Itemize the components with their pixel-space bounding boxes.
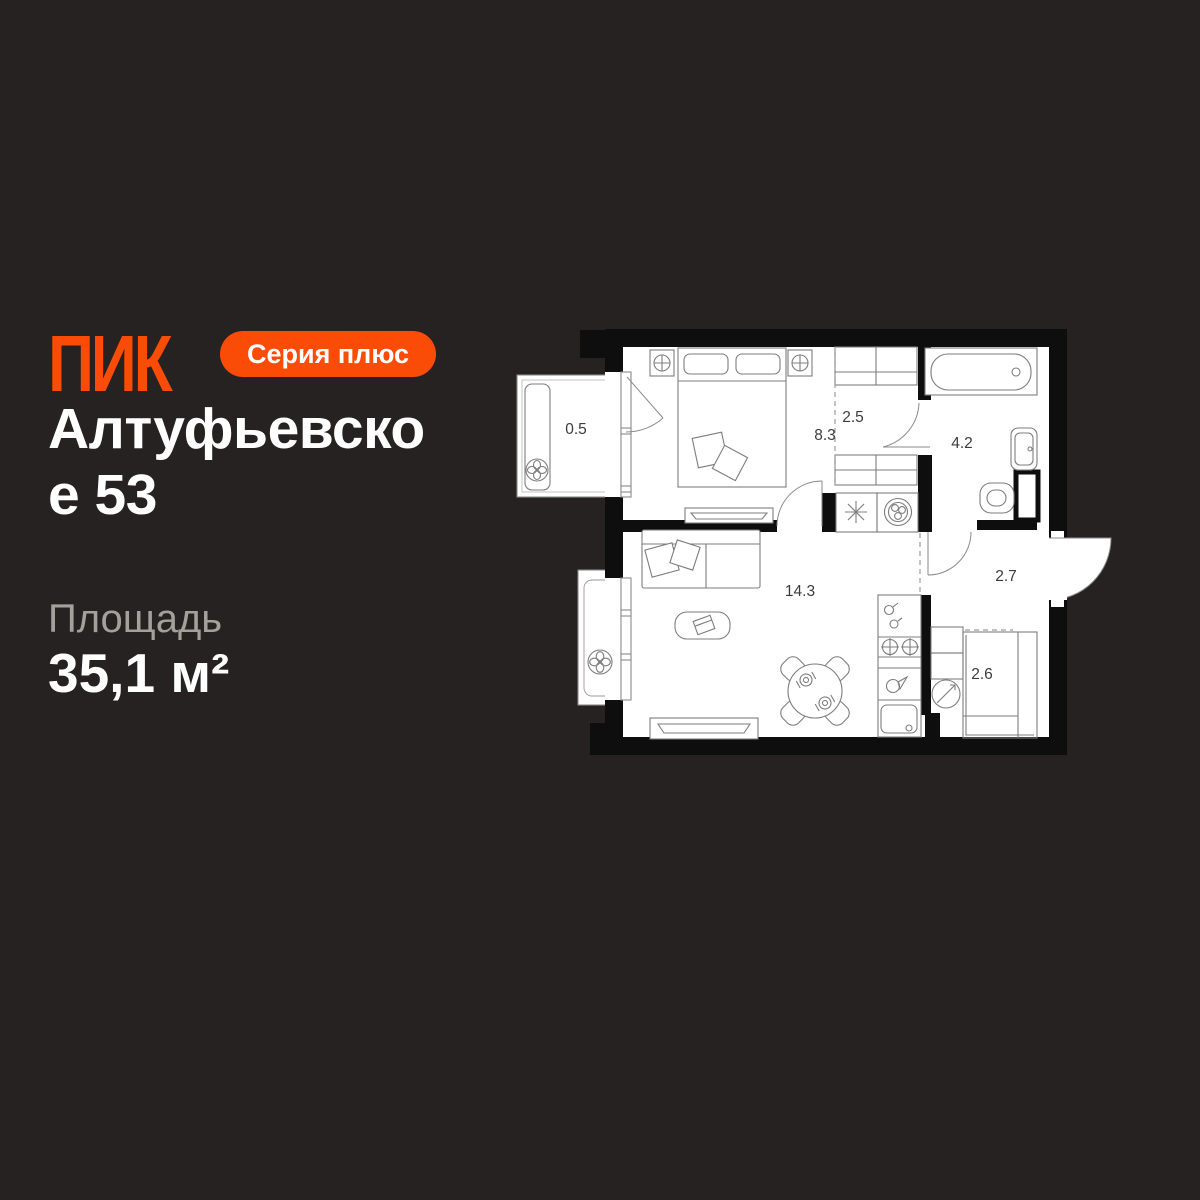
window-bedroom: [621, 372, 631, 497]
room-area-label: 14.3: [785, 583, 815, 600]
floor-plan-svg: 0.5 8.3 2.5 4.2 14.3 2.7 2.6: [510, 320, 1125, 760]
room-area-label: 8.3: [814, 427, 836, 444]
title-line-1: Алтуфьевско: [48, 396, 425, 462]
listing-card: ПИК Серия плюс Алтуфьевско е 53 Площадь …: [0, 0, 1200, 1200]
room-area-label: 4.2: [951, 435, 973, 452]
area-value: 35,1 м²: [48, 641, 229, 705]
bath-sink-icon: [1011, 428, 1037, 470]
room-area-label: 2.7: [995, 568, 1017, 585]
room-area-label: 2.6: [971, 666, 993, 683]
dresser-icon: [685, 508, 773, 523]
page-title: Алтуфьевско е 53: [48, 396, 425, 528]
dining-table-icon: [777, 653, 852, 728]
sofa-icon: [642, 530, 760, 588]
nightstand-icon: [788, 350, 812, 376]
series-badge: Серия плюс: [220, 331, 436, 377]
room-area-label: 2.5: [842, 409, 864, 426]
title-line-2: е 53: [48, 462, 425, 528]
area-label: Площадь: [48, 597, 222, 642]
bathtub-icon: [925, 348, 1037, 395]
floor-plan: 0.5 8.3 2.5 4.2 14.3 2.7 2.6: [510, 320, 1125, 765]
toilet-icon: [980, 483, 1014, 513]
tv-stand-icon: [650, 718, 758, 739]
room-area-label: 0.5: [565, 421, 587, 438]
duct-shaft: [1016, 472, 1038, 520]
window-living: [621, 578, 631, 700]
pik-logo: ПИК: [48, 324, 169, 404]
bed-icon: [678, 348, 786, 487]
series-badge-label: Серия плюс: [247, 339, 409, 370]
balcony-ac-unit: [525, 384, 550, 490]
nightstand-icon: [650, 350, 674, 376]
coffee-table-icon: [675, 612, 730, 639]
